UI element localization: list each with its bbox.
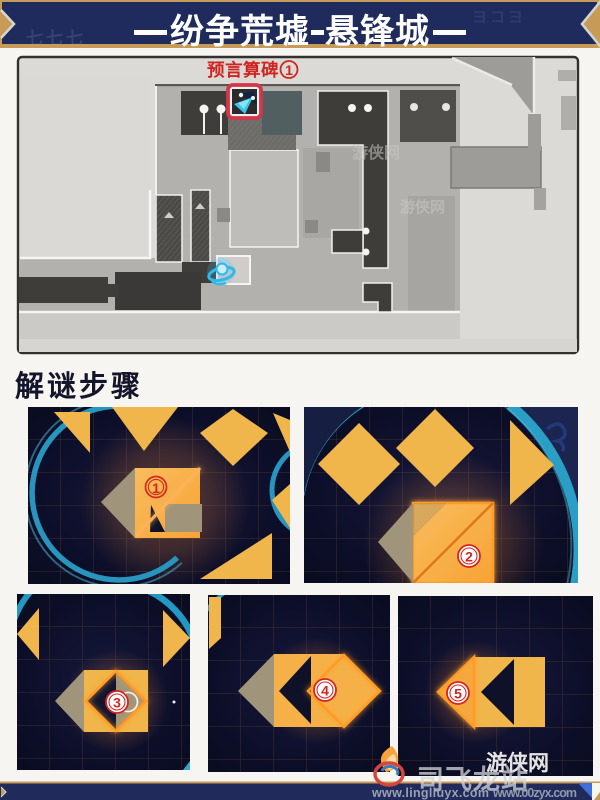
svg-text:www.00zyx.com: www.00zyx.com: [492, 786, 577, 800]
svg-text:2: 2: [465, 549, 473, 565]
svg-text:1: 1: [285, 62, 293, 78]
svg-text:游侠网: 游侠网: [352, 143, 400, 162]
svg-text:1: 1: [152, 480, 160, 496]
svg-text:5: 5: [454, 686, 462, 702]
svg-text:3: 3: [113, 695, 121, 711]
svg-text:预言算碑: 预言算碑: [207, 60, 279, 80]
svg-text:4: 4: [321, 683, 329, 699]
svg-text:游侠网: 游侠网: [400, 198, 445, 216]
svg-text:www.lingliuyx.com: www.lingliuyx.com: [371, 786, 489, 800]
